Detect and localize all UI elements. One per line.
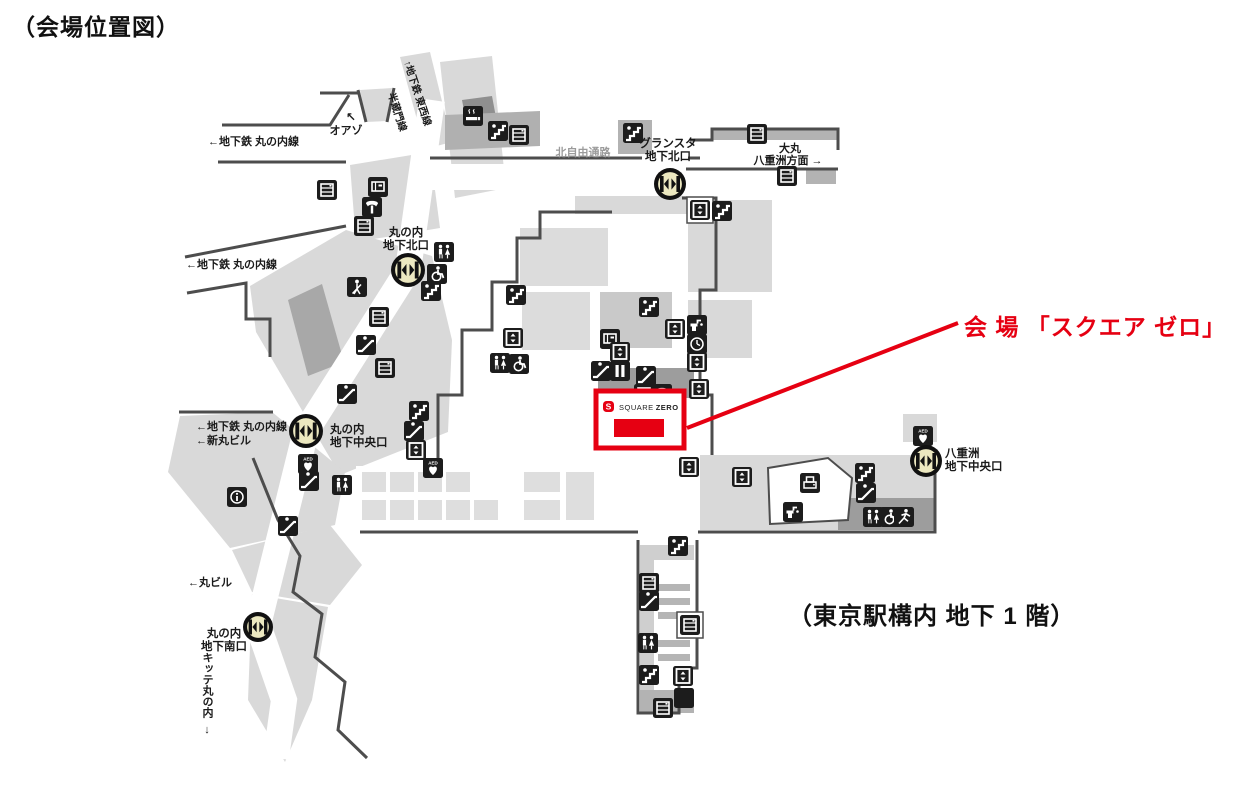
gate-label-yaesu-chuo: 地下中央口	[945, 459, 1003, 473]
logo-wordmark: SQUAREZERO	[619, 403, 679, 412]
stairs-icon	[639, 665, 659, 685]
bag-icon	[674, 688, 694, 708]
run-icon	[894, 507, 914, 527]
gate-label-gransta-kita: 地下北口	[645, 149, 691, 163]
station-map: AED	[0, 0, 1258, 785]
map-label-metro-marunouchi-line-3: ←地下鉄 丸の内線	[196, 419, 287, 433]
gate-label-marunouchi-kita: 丸の内	[388, 225, 424, 239]
ticket-icon	[368, 177, 388, 197]
map-label-kita-jiyu-tsuro: 北自由通路	[556, 145, 612, 159]
fountain-icon	[783, 502, 803, 522]
ticket-gate-marunouchi-minami	[243, 612, 273, 642]
elevator-icon	[503, 328, 523, 348]
map-label-oazo-arrow: ↖	[346, 110, 356, 124]
stairs-icon	[855, 463, 875, 483]
gate-label-yaesu-chuo: 八重洲	[944, 446, 980, 460]
toilets-icon	[638, 633, 658, 653]
locker-icon	[677, 612, 703, 638]
locker-icon	[317, 180, 337, 200]
page-title: （会場位置図）	[12, 8, 180, 42]
stairs-icon	[488, 121, 508, 141]
escalator-icon	[591, 361, 611, 381]
map-label-oazo: オアゾ	[330, 123, 363, 137]
elevator-icon	[673, 666, 693, 686]
ticket-gate-marunouchi-chuo	[289, 414, 323, 448]
venue-location-page: AED	[0, 0, 1258, 785]
wheelchair-icon	[509, 354, 529, 374]
escalator-icon	[639, 591, 659, 611]
map-label-metro-marunouchi-line-1: ←地下鉄 丸の内線	[208, 134, 299, 148]
elevator-icon	[610, 342, 630, 362]
locker-icon	[369, 307, 389, 327]
gate-label-marunouchi-minami: 地下南口	[201, 639, 247, 653]
locker-icon	[777, 166, 797, 186]
walkway-icon	[610, 361, 630, 381]
escalator-icon	[299, 471, 319, 491]
venue-area-fill	[614, 419, 664, 437]
toilets-icon	[490, 353, 510, 373]
stairs-icon	[668, 536, 688, 556]
gate-label-marunouchi-kita: 地下北口	[383, 238, 429, 252]
ticket-gate-marunouchi-kita	[391, 253, 425, 287]
smoking-icon	[463, 106, 483, 126]
stairs-icon	[712, 201, 732, 221]
map-label-yaesu-homen: 八重洲方面 →	[752, 153, 822, 167]
ticket-gate-gransta-kita	[654, 168, 686, 200]
elevator-icon	[406, 440, 426, 460]
guide-icon	[347, 277, 367, 297]
map-label-shin-maru-biru: ←新丸ビル	[196, 433, 251, 447]
map-label-kitte-marunouchi: キッテ丸の内	[201, 652, 215, 719]
stairs-icon	[506, 285, 526, 305]
phone-icon	[362, 197, 382, 217]
escalator-icon	[636, 366, 656, 386]
locker-icon	[509, 125, 529, 145]
stairs-icon	[409, 401, 429, 421]
aed-icon	[913, 426, 933, 446]
map-label-maru-biru: ←丸ビル	[188, 575, 232, 589]
toilets-icon	[332, 475, 352, 495]
fountain-icon	[687, 315, 707, 335]
escalator-icon	[337, 384, 357, 404]
map-label-daimaru: 大丸	[779, 141, 802, 155]
locker-icon	[354, 216, 374, 236]
info-icon	[227, 487, 247, 507]
escalator-icon	[278, 516, 298, 536]
elevator-icon	[665, 319, 685, 339]
locker-icon	[653, 698, 673, 718]
stairs-icon	[639, 297, 659, 317]
elevator-icon	[732, 467, 752, 487]
toilets-icon	[434, 242, 454, 262]
map-label-metro-marunouchi-line-2: ←地下鉄 丸の内線	[186, 257, 277, 271]
gate-label-gransta-kita: グランスタ	[639, 136, 696, 150]
escalator-icon	[356, 335, 376, 355]
map-label-kitte-arrow: ↓	[204, 724, 210, 736]
locker-icon	[747, 124, 767, 144]
copy-icon	[800, 473, 820, 493]
escalator-icon	[404, 421, 424, 441]
elevator-icon	[679, 457, 699, 477]
ticket-gate-yaesu-chuo	[910, 445, 942, 477]
clock-icon	[687, 334, 707, 354]
gate-label-marunouchi-chuo: 丸の内	[329, 422, 365, 436]
elevator-icon	[687, 197, 713, 223]
elevator-icon	[687, 352, 707, 372]
locker-icon	[639, 573, 659, 593]
venue-callout-label: 会 場 「スクエア ゼロ」	[964, 308, 1226, 342]
escalator-icon	[856, 483, 876, 503]
aed-icon	[423, 458, 443, 478]
elevator-icon	[689, 379, 709, 399]
locker-icon	[375, 358, 395, 378]
logo-mark: S	[606, 402, 612, 412]
stairs-icon	[421, 281, 441, 301]
gate-label-marunouchi-chuo: 地下中央口	[330, 435, 388, 449]
floor-note: （東京駅構内 地下 1 階）	[788, 596, 1075, 631]
gate-label-marunouchi-minami: 丸の内	[206, 626, 242, 640]
